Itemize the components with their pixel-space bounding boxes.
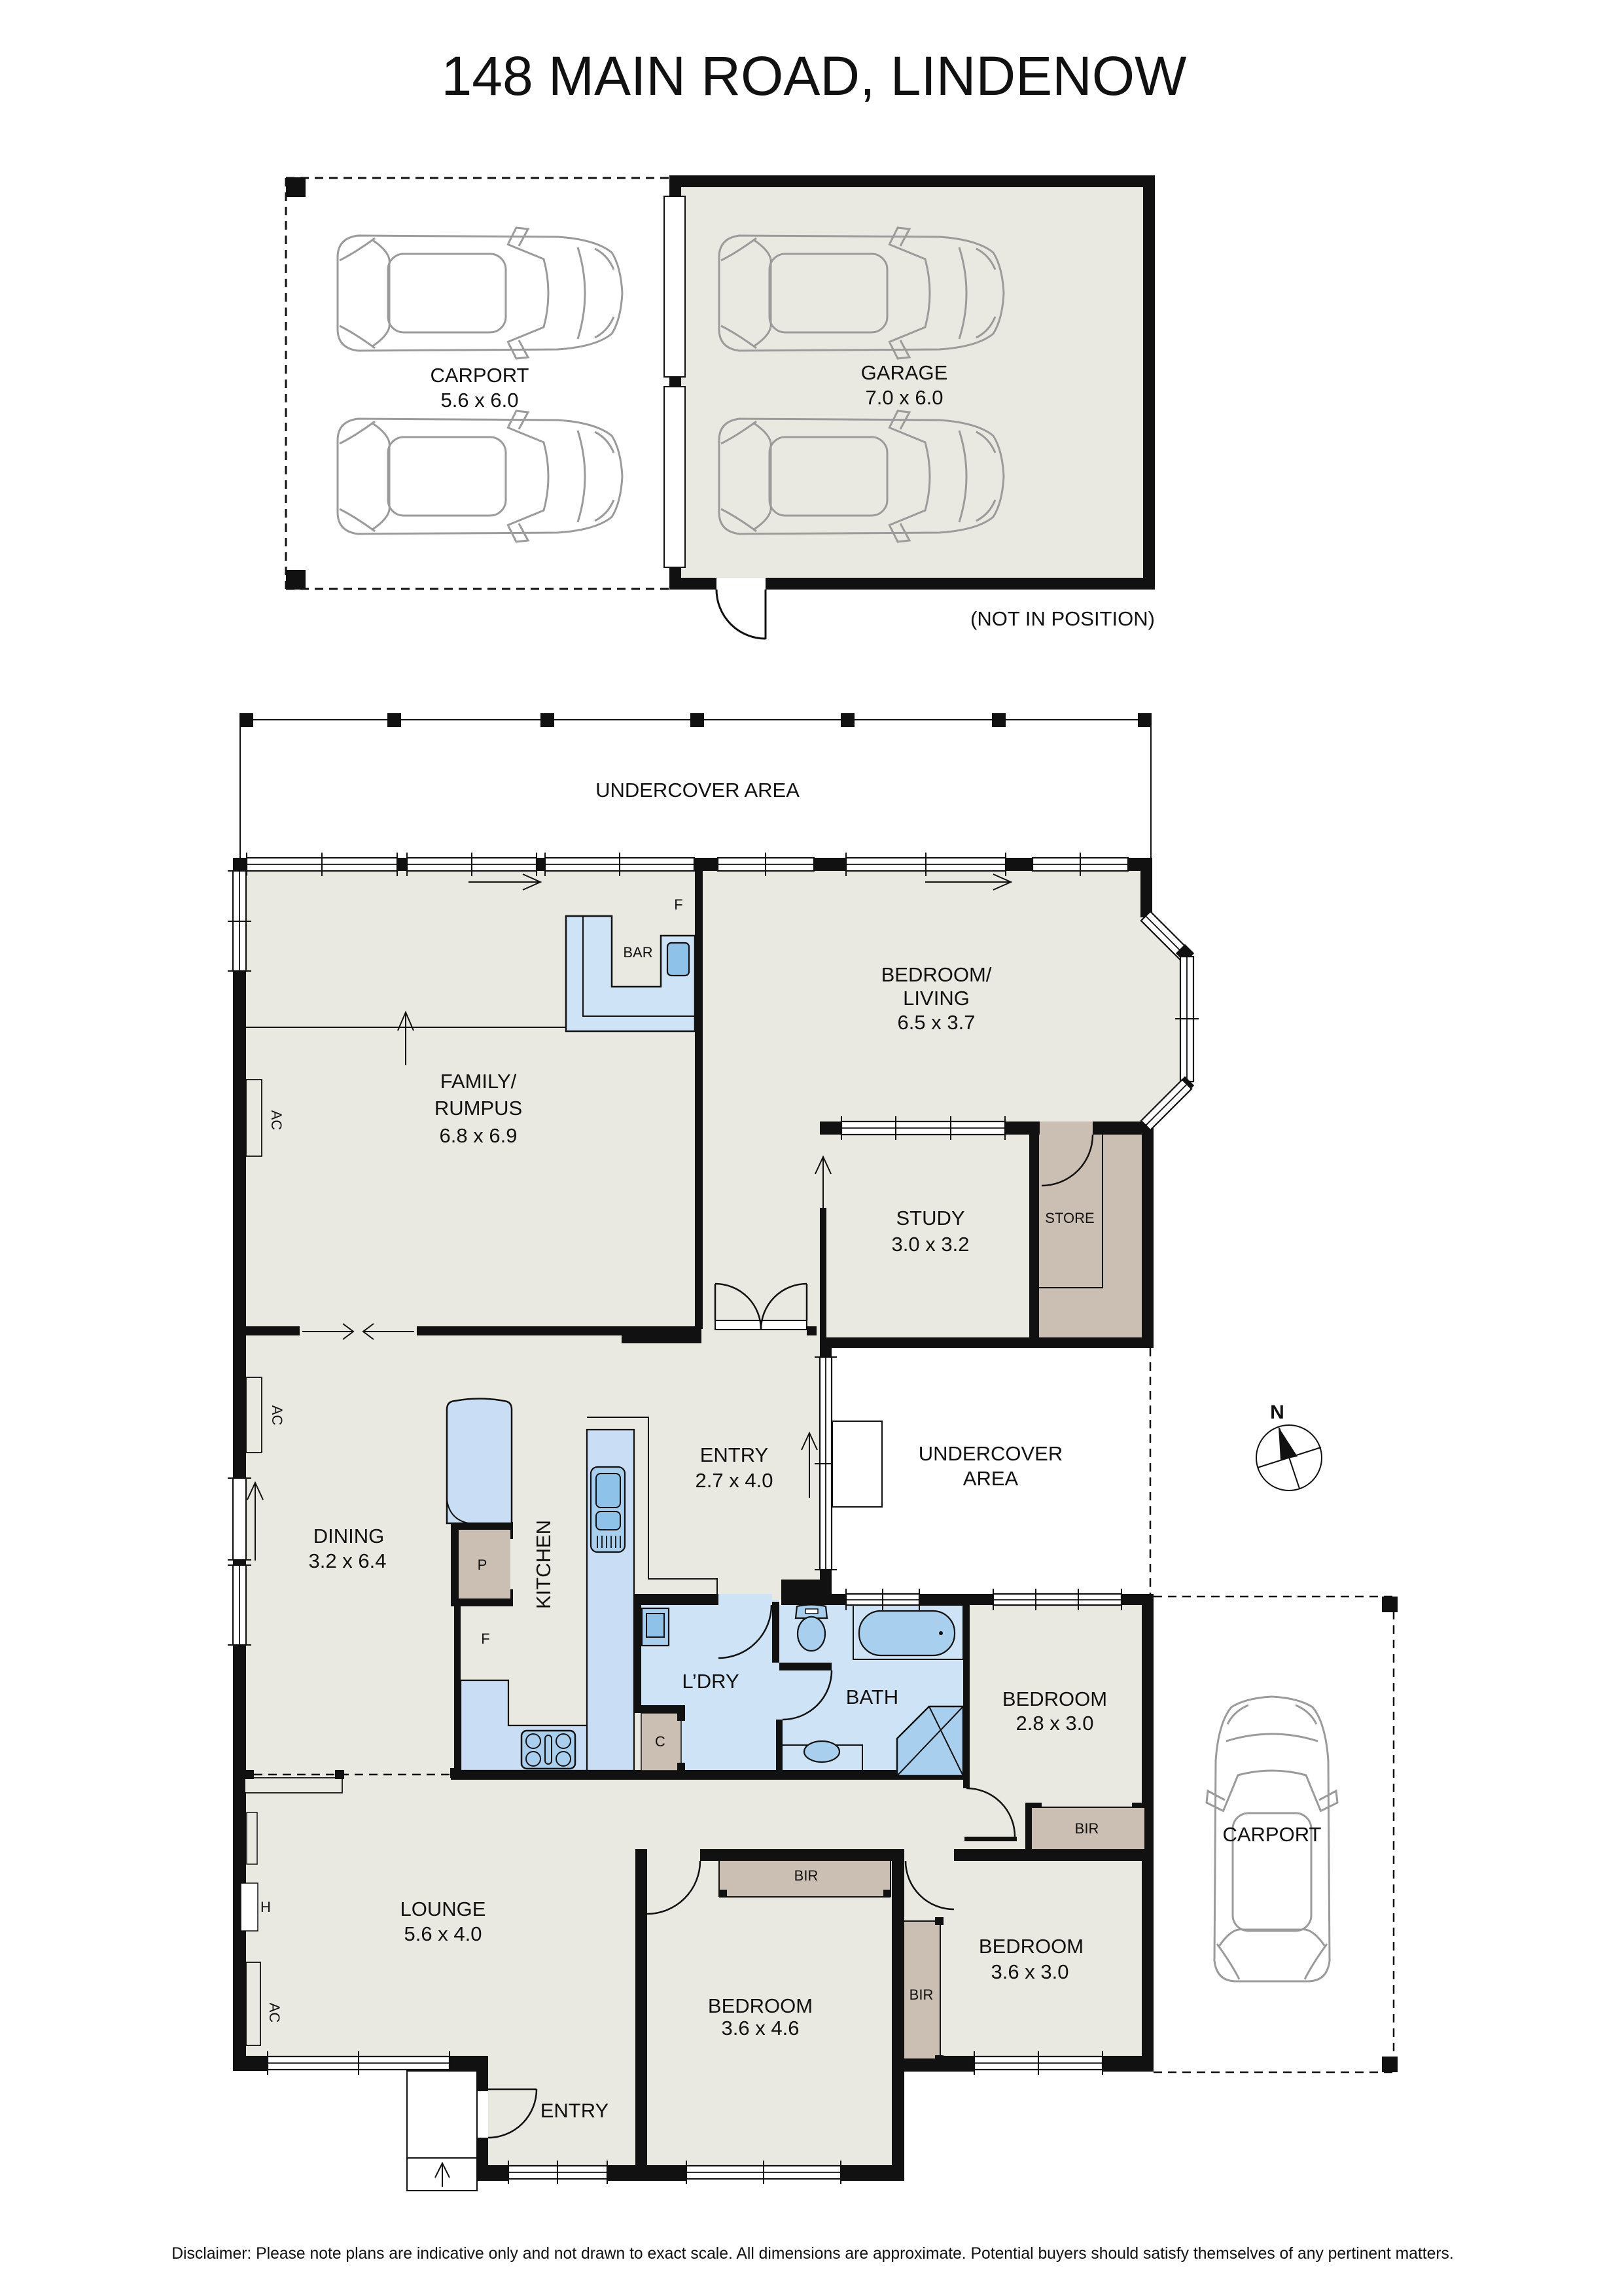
svg-text:GARAGE: GARAGE [861, 361, 948, 384]
svg-text:STUDY: STUDY [896, 1207, 964, 1229]
svg-text:3.2 x 6.4: 3.2 x 6.4 [309, 1549, 387, 1572]
svg-text:2.7 x 4.0: 2.7 x 4.0 [696, 1469, 773, 1492]
svg-text:Disclaimer: Please note plans: Disclaimer: Please note plans are indica… [171, 2245, 1454, 2263]
svg-text:CARPORT: CARPORT [1222, 1823, 1321, 1846]
svg-text:ENTRY: ENTRY [540, 2099, 609, 2122]
svg-text:STORE: STORE [1045, 1210, 1094, 1226]
svg-text:LOUNGE: LOUNGE [400, 1898, 486, 1920]
svg-text:148 MAIN ROAD, LINDENOW: 148 MAIN ROAD, LINDENOW [442, 45, 1187, 107]
svg-text:AREA: AREA [963, 1467, 1019, 1490]
svg-text:AC: AC [268, 1110, 285, 1131]
svg-text:BIR: BIR [909, 1987, 934, 2003]
svg-text:BEDROOM: BEDROOM [708, 1994, 813, 2017]
svg-text:L’DRY: L’DRY [682, 1670, 739, 1693]
svg-text:FAMILY/: FAMILY/ [440, 1070, 517, 1093]
svg-text:ENTRY: ENTRY [700, 1443, 769, 1466]
svg-text:P: P [478, 1557, 487, 1573]
svg-text:RUMPUS: RUMPUS [434, 1097, 522, 1120]
svg-text:AC: AC [266, 2003, 283, 2023]
svg-text:BIR: BIR [1075, 1820, 1099, 1837]
svg-text:H: H [260, 1899, 271, 1915]
svg-text:AC: AC [269, 1405, 285, 1426]
svg-text:CARPORT: CARPORT [430, 364, 529, 387]
svg-text:N: N [1270, 1402, 1284, 1423]
svg-text:6.5 x 3.7: 6.5 x 3.7 [898, 1011, 976, 1034]
svg-text:F: F [481, 1631, 489, 1647]
svg-text:5.6 x 6.0: 5.6 x 6.0 [441, 389, 519, 412]
svg-text:UNDERCOVER AREA: UNDERCOVER AREA [595, 779, 800, 802]
svg-text:3.0 x 3.2: 3.0 x 3.2 [892, 1233, 970, 1256]
svg-text:BEDROOM: BEDROOM [979, 1935, 1084, 1958]
svg-text:KITCHEN: KITCHEN [532, 1520, 555, 1609]
svg-text:DINING: DINING [313, 1525, 385, 1547]
svg-text:5.6 x 4.0: 5.6 x 4.0 [404, 1922, 482, 1945]
svg-text:2.8 x 3.0: 2.8 x 3.0 [1016, 1712, 1094, 1735]
svg-text:BAR: BAR [623, 944, 652, 961]
svg-text:3.6 x 3.0: 3.6 x 3.0 [991, 1960, 1069, 1983]
svg-text:BATH: BATH [846, 1686, 898, 1708]
svg-text:C: C [655, 1733, 665, 1750]
svg-text:LIVING: LIVING [903, 987, 970, 1010]
svg-text:BIR: BIR [794, 1867, 819, 1884]
svg-text:7.0 x 6.0: 7.0 x 6.0 [866, 386, 944, 409]
svg-text:(NOT IN POSITION): (NOT IN POSITION) [970, 607, 1155, 630]
svg-text:BEDROOM/: BEDROOM/ [881, 963, 992, 986]
svg-text:6.8 x 6.9: 6.8 x 6.9 [440, 1124, 518, 1147]
svg-text:F: F [674, 896, 682, 913]
svg-text:UNDERCOVER: UNDERCOVER [919, 1442, 1063, 1465]
svg-text:3.6 x 4.6: 3.6 x 4.6 [722, 2017, 800, 2040]
svg-text:BEDROOM: BEDROOM [1002, 1687, 1107, 1710]
